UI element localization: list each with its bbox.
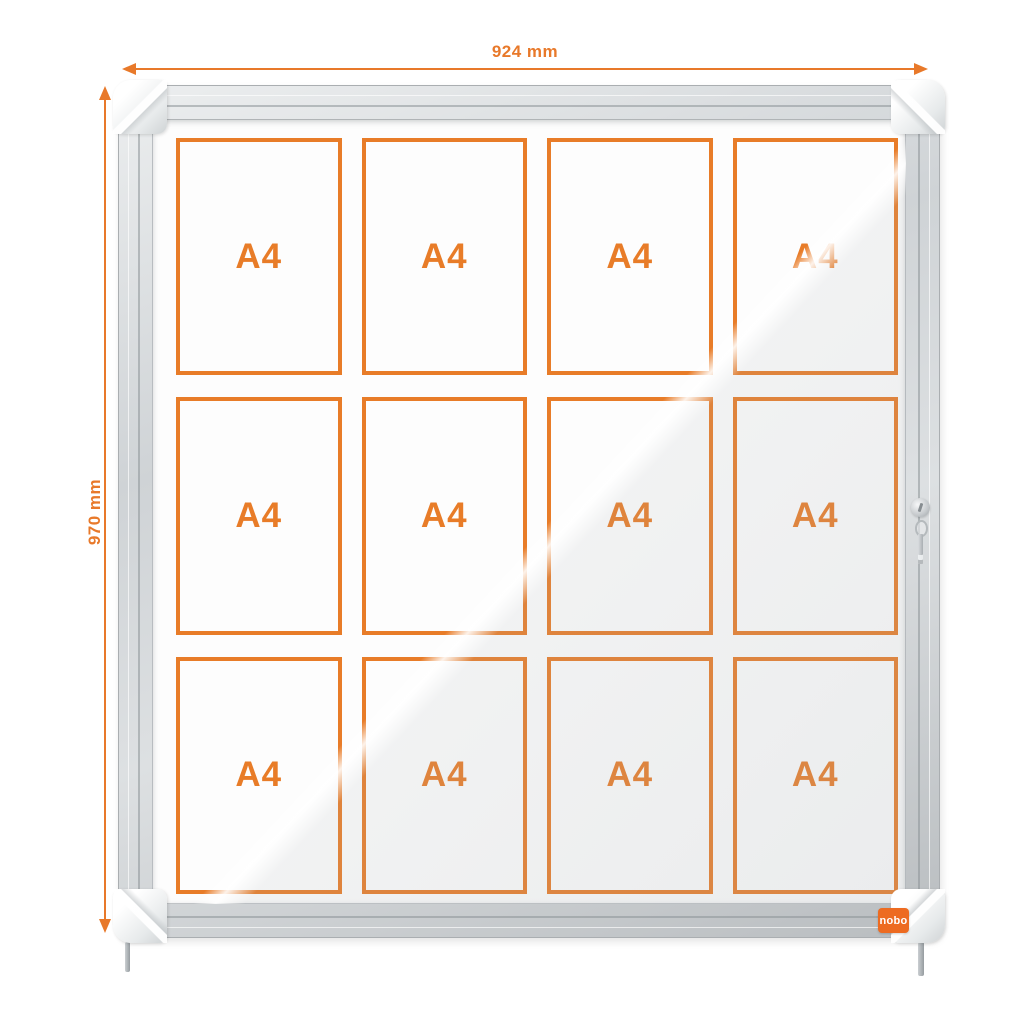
a4-panel: A4 [176, 657, 342, 894]
a4-label: A4 [792, 755, 839, 795]
key-blade [918, 534, 923, 564]
nobo-logo-text: nobo [879, 915, 907, 927]
a4-panel-grid: A4 A4 A4 A4 A4 A4 A4 A4 A4 A4 A4 A4 [176, 138, 898, 894]
width-dimension-arrow [122, 63, 928, 75]
wall-fixing-left [125, 942, 130, 972]
arrowhead-right-icon [914, 63, 928, 75]
width-dimension-line [133, 68, 917, 70]
a4-label: A4 [421, 237, 468, 277]
a4-panel: A4 [547, 657, 713, 894]
a4-panel: A4 [733, 397, 899, 634]
a4-panel: A4 [547, 397, 713, 634]
corner-cap-top-right [891, 80, 945, 134]
a4-label: A4 [606, 755, 653, 795]
wall-fixing-right [918, 942, 924, 976]
a4-panel: A4 [362, 397, 528, 634]
a4-panel: A4 [733, 138, 899, 375]
arrowhead-down-icon [99, 919, 111, 933]
a4-label: A4 [235, 755, 282, 795]
a4-panel: A4 [362, 138, 528, 375]
lock-icon [911, 498, 930, 517]
corner-cap-bottom-left [113, 889, 167, 943]
display-case-frame: A4 A4 A4 A4 A4 A4 A4 A4 A4 A4 A4 A4 nobo [118, 85, 940, 938]
a4-panel: A4 [176, 138, 342, 375]
a4-label: A4 [421, 496, 468, 536]
height-dimension-arrow [99, 86, 111, 933]
arrowhead-up-icon [99, 86, 111, 100]
width-dimension-label: 924 mm [122, 42, 928, 62]
corner-cap-top-left [113, 80, 167, 134]
a4-panel: A4 [733, 657, 899, 894]
a4-panel: A4 [362, 657, 528, 894]
a4-panel: A4 [547, 138, 713, 375]
a4-label: A4 [421, 755, 468, 795]
a4-label: A4 [606, 237, 653, 277]
height-dimension-line [104, 97, 106, 922]
a4-label: A4 [235, 496, 282, 536]
a4-label: A4 [792, 496, 839, 536]
a4-label: A4 [235, 237, 282, 277]
arrowhead-left-icon [122, 63, 136, 75]
a4-panel: A4 [176, 397, 342, 634]
a4-label: A4 [606, 496, 653, 536]
nobo-logo-badge: nobo [878, 908, 909, 933]
a4-label: A4 [792, 237, 839, 277]
product-diagram: 924 mm 970 mm A4 A4 A4 A4 A4 A4 A4 A4 A4… [0, 0, 1024, 1024]
